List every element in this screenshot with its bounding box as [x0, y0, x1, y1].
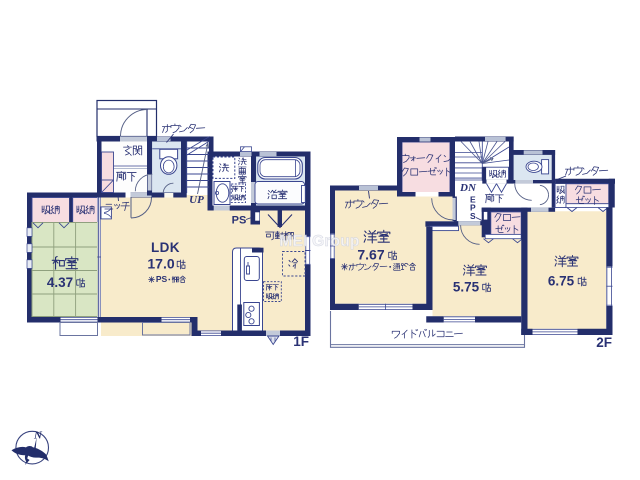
svg-text:17.0: 17.0 — [147, 256, 174, 272]
svg-text:LDK: LDK — [151, 240, 180, 255]
svg-text:S: S — [470, 211, 476, 221]
svg-text:UP: UP — [189, 194, 204, 206]
svg-text:PS: PS — [232, 215, 247, 227]
svg-text:MEI Group: MEI Group — [279, 233, 359, 250]
svg-text:1F: 1F — [293, 334, 309, 349]
svg-text:6.75: 6.75 — [548, 274, 575, 289]
svg-text:4.37: 4.37 — [47, 275, 73, 290]
svg-text:PS: PS — [156, 274, 168, 284]
svg-text:N: N — [33, 430, 43, 442]
svg-text:DN: DN — [459, 182, 477, 194]
svg-text:7.67: 7.67 — [357, 247, 384, 263]
svg-text:2F: 2F — [596, 335, 612, 350]
svg-text:5.75: 5.75 — [453, 280, 480, 295]
